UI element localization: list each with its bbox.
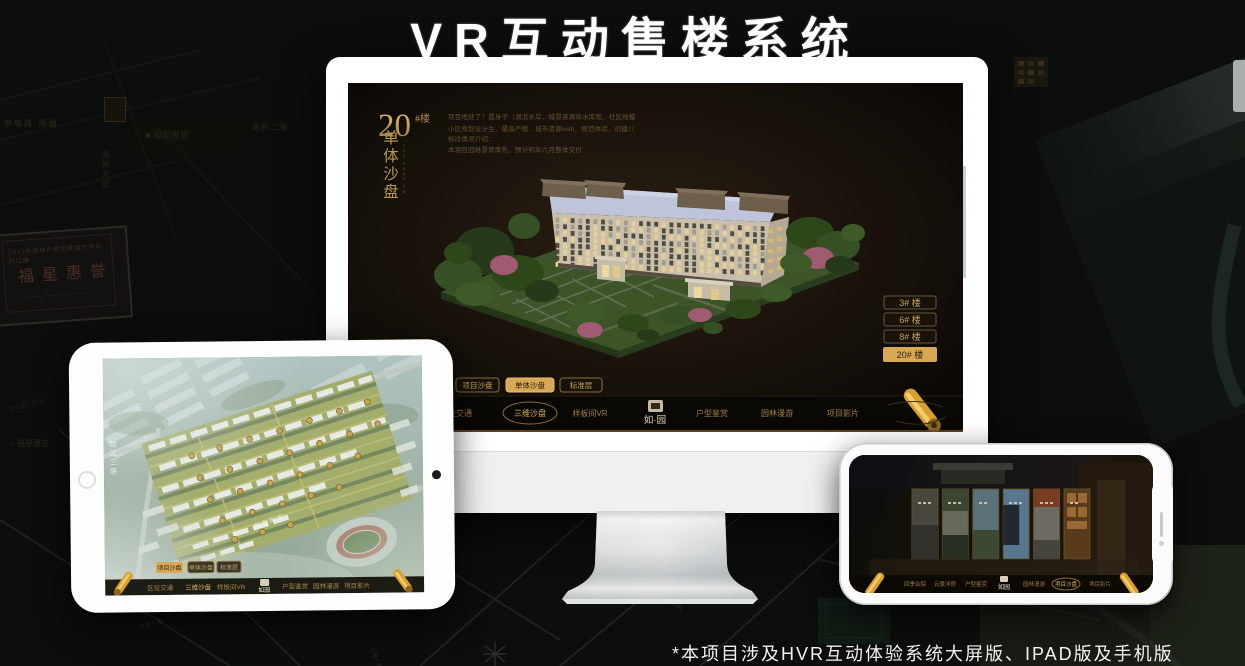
svg-text:沙: 沙 bbox=[383, 166, 399, 183]
svg-text:标段情况介绍：: 标段情况介绍： bbox=[448, 134, 495, 143]
svg-text:样板间VR: 样板间VR bbox=[217, 582, 246, 591]
svg-text:8# 楼: 8# 楼 bbox=[899, 331, 921, 342]
svg-text:盘: 盘 bbox=[383, 182, 399, 201]
svg-text:单: 单 bbox=[383, 129, 399, 147]
svg-text:3# 楼: 3# 楼 bbox=[899, 297, 921, 308]
svg-text:区位交通: 区位交通 bbox=[147, 583, 174, 592]
svg-text:单体沙盘: 单体沙盘 bbox=[189, 564, 213, 572]
svg-text:园林漫游: 园林漫游 bbox=[761, 408, 793, 418]
svg-text:20# 楼: 20# 楼 bbox=[897, 349, 924, 360]
svg-text:云景洋房: 云景洋房 bbox=[934, 580, 957, 588]
svg-text:标准层: 标准层 bbox=[570, 380, 593, 390]
svg-text:本项目园林景观率先．预计明年六月整体交付: 本项目园林景观率先．预计明年六月整体交付 bbox=[448, 145, 582, 154]
svg-text:三维沙盘: 三维沙盘 bbox=[185, 583, 212, 592]
svg-text:6# 楼: 6# 楼 bbox=[899, 314, 921, 325]
svg-text:园林漫游: 园林漫游 bbox=[1023, 580, 1046, 588]
svg-text:区: 区 bbox=[110, 450, 117, 458]
svg-text:项目沙盘: 项目沙盘 bbox=[157, 564, 181, 572]
svg-text:四季合院: 四季合院 bbox=[904, 580, 927, 588]
svg-text:路: 路 bbox=[110, 467, 117, 476]
svg-text:E: E bbox=[403, 153, 406, 158]
svg-text:园林漫游: 园林漫游 bbox=[313, 581, 340, 590]
svg-text:样板间VR: 样板间VR bbox=[572, 408, 607, 418]
svg-text:项目沙盘: 项目沙盘 bbox=[463, 380, 493, 390]
svg-text:体: 体 bbox=[383, 147, 399, 165]
svg-text:如园: 如园 bbox=[258, 586, 270, 594]
svg-text:D: D bbox=[403, 176, 406, 181]
svg-text:如·园: 如·园 bbox=[644, 414, 666, 426]
svg-text:如园: 如园 bbox=[998, 583, 1010, 591]
svg-text:户型鉴赏: 户型鉴赏 bbox=[965, 580, 988, 588]
svg-text:三维沙盘: 三维沙盘 bbox=[514, 408, 546, 418]
svg-text:三: 三 bbox=[110, 459, 117, 467]
svg-text:户型鉴赏: 户型鉴赏 bbox=[696, 408, 728, 418]
svg-text:项目影片: 项目影片 bbox=[1089, 580, 1111, 588]
svg-text:项目影片: 项目影片 bbox=[827, 408, 859, 418]
svg-text:小区规划设计生．最高严楼．城市资源wab．规范体验．创建八: 小区规划设计生．最高严楼．城市资源wab．规范体验．创建八 bbox=[448, 124, 635, 133]
svg-text:单体沙盘: 单体沙盘 bbox=[515, 380, 545, 390]
svg-text:园: 园 bbox=[110, 441, 117, 449]
svg-text:B: B bbox=[403, 189, 406, 194]
svg-text:户型鉴赏: 户型鉴赏 bbox=[282, 582, 309, 591]
svg-text:项目沙盘: 项目沙盘 bbox=[1055, 580, 1078, 588]
svg-text:项目地处了？置身于（湖滨水岸．城景资源将水库观．社区规模: 项目地处了？置身于（湖滨水岸．城景资源将水库观．社区规模 bbox=[448, 112, 636, 121]
svg-text:项目影片: 项目影片 bbox=[344, 581, 370, 590]
svg-text:标准层: 标准层 bbox=[220, 563, 238, 571]
svg-text:#楼: #楼 bbox=[415, 112, 430, 125]
